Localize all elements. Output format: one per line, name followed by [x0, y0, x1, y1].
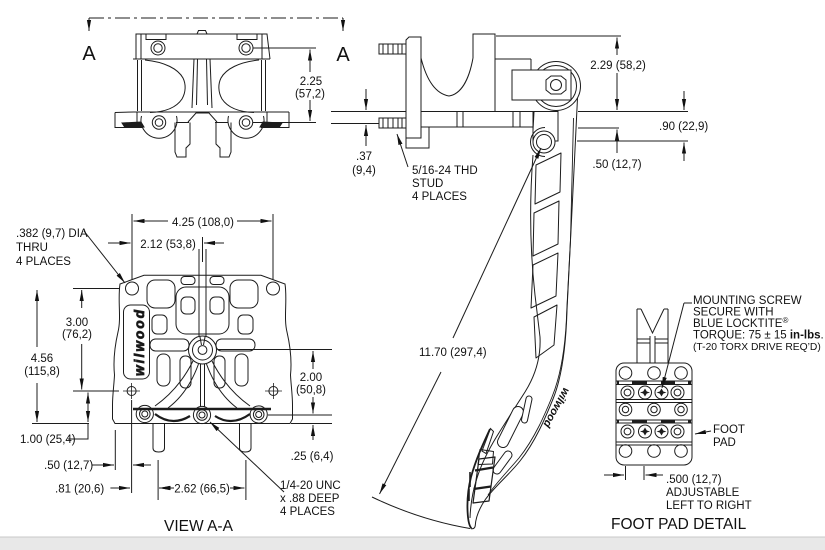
svg-text:PAD: PAD — [713, 437, 736, 449]
svg-text:A: A — [336, 44, 350, 66]
svg-text:.382 (9,7) DIA: .382 (9,7) DIA — [16, 228, 88, 240]
svg-text:2.12 (53,8): 2.12 (53,8) — [140, 239, 196, 251]
svg-text:.500 (12,7): .500 (12,7) — [666, 474, 722, 486]
svg-text:THRU: THRU — [16, 242, 48, 254]
svg-text:1/4-20 UNC: 1/4-20 UNC — [280, 480, 341, 492]
svg-text:4 PLACES: 4 PLACES — [412, 191, 467, 203]
svg-text:VIEW A-A: VIEW A-A — [164, 518, 234, 535]
svg-text:.50 (12,7): .50 (12,7) — [592, 159, 641, 171]
svg-text:.90 (22,9): .90 (22,9) — [659, 121, 708, 133]
svg-text:BLUE LOCKTITE®: BLUE LOCKTITE® — [693, 316, 788, 331]
svg-text:3.00: 3.00 — [66, 317, 88, 329]
svg-text:4.25 (108,0): 4.25 (108,0) — [172, 217, 234, 229]
svg-text:2.62 (66,5): 2.62 (66,5) — [174, 484, 230, 496]
svg-text:4 PLACES: 4 PLACES — [16, 256, 71, 268]
svg-text:5/16-24 THD: 5/16-24 THD — [412, 165, 478, 177]
svg-text:wilwood: wilwood — [132, 309, 147, 376]
svg-text:SECURE WITH: SECURE WITH — [693, 307, 774, 319]
svg-text:TORQUE: 75 ± 15 in-lbs.: TORQUE: 75 ± 15 in-lbs. — [693, 330, 824, 342]
svg-text:.50 (12,7): .50 (12,7) — [44, 460, 93, 472]
svg-text:2.29 (58,2): 2.29 (58,2) — [590, 60, 646, 72]
svg-text:MOUNTING SCREW: MOUNTING SCREW — [693, 295, 802, 307]
svg-text:2.25: 2.25 — [300, 76, 322, 88]
svg-text:(115,8): (115,8) — [24, 366, 60, 378]
svg-text:4 PLACES: 4 PLACES — [280, 506, 335, 518]
svg-text:.25 (6,4): .25 (6,4) — [291, 451, 334, 463]
svg-text:FOOT: FOOT — [713, 424, 745, 436]
svg-text:(57,2): (57,2) — [295, 89, 325, 101]
svg-text:x .88 DEEP: x .88 DEEP — [280, 493, 340, 505]
svg-text:FOOT PAD DETAIL: FOOT PAD DETAIL — [611, 516, 747, 533]
svg-text:.37: .37 — [356, 151, 372, 163]
svg-text:2.00: 2.00 — [300, 372, 322, 384]
svg-text:STUD: STUD — [412, 178, 443, 190]
svg-text:A: A — [82, 43, 96, 65]
svg-text:(50,8): (50,8) — [296, 385, 326, 397]
svg-text:(76,2): (76,2) — [62, 329, 92, 341]
svg-text:1.00 (25,4): 1.00 (25,4) — [20, 434, 76, 446]
svg-text:(T-20 TORX DRIVE REQ’D): (T-20 TORX DRIVE REQ’D) — [693, 342, 821, 353]
svg-text:LEFT TO RIGHT: LEFT TO RIGHT — [666, 500, 752, 512]
svg-text:4.56: 4.56 — [31, 353, 53, 365]
svg-text:11.70 (297,4): 11.70 (297,4) — [419, 347, 487, 359]
svg-text:.81 (20,6): .81 (20,6) — [55, 484, 104, 496]
svg-text:(9,4): (9,4) — [352, 165, 376, 177]
svg-text:ADJUSTABLE: ADJUSTABLE — [666, 487, 740, 499]
